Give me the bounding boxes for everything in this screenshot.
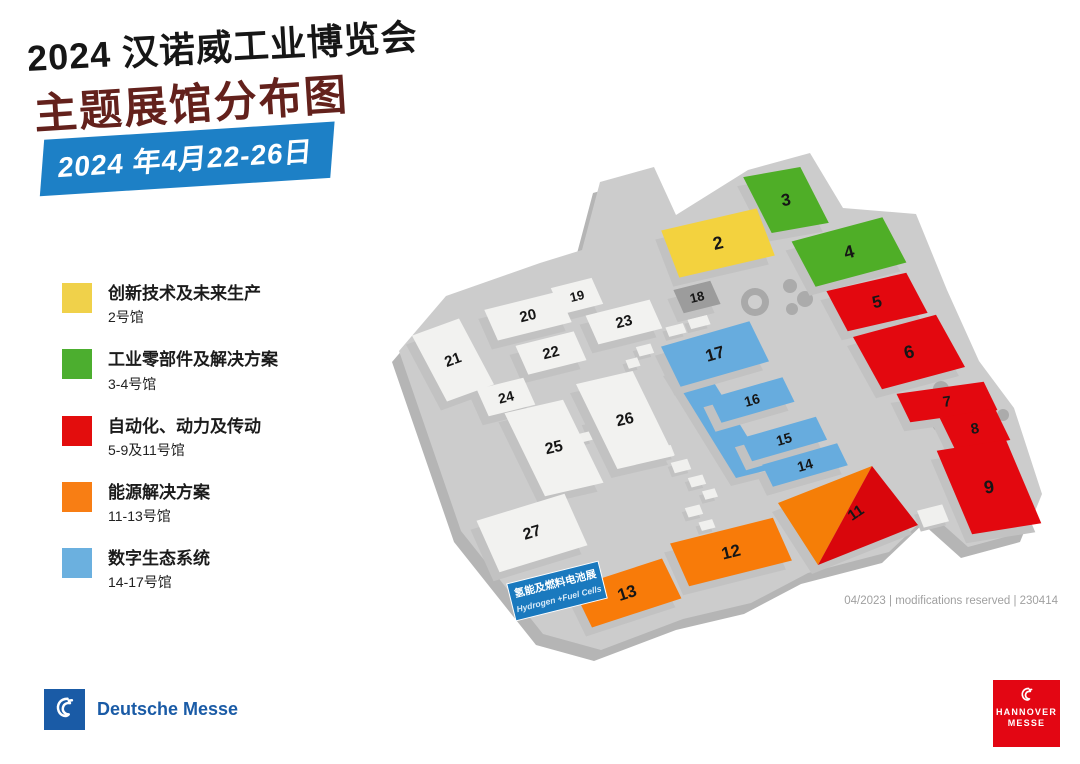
- hannover-messe-line1: HANNOVER: [996, 707, 1057, 718]
- legend-swatch: [62, 349, 92, 379]
- date-banner-text: 2024 年4月22-26日: [57, 136, 314, 183]
- legend-hall-numbers: 5-9及11号馆: [108, 440, 261, 460]
- legend-item-4: 数字生态系统14-17号馆: [62, 548, 278, 592]
- legend-swatch: [62, 416, 92, 446]
- hannover-messe-logo: HANNOVER MESSE: [993, 680, 1060, 747]
- legend-item-0: 创新技术及未来生产2号馆: [62, 283, 278, 327]
- deutsche-messe-logo: Deutsche Messe: [44, 689, 238, 730]
- legend-swatch: [62, 548, 92, 578]
- map-footnote: 04/2023 | modifications reserved | 23041…: [844, 595, 1058, 607]
- legend-label: 工业零部件及解决方案: [108, 349, 278, 370]
- hermes-head-icon: [50, 695, 80, 725]
- legend-label: 创新技术及未来生产: [108, 283, 261, 304]
- hermes-head-icon: [1017, 685, 1037, 707]
- legend-swatch: [62, 283, 92, 313]
- legend-hall-numbers: 3-4号馆: [108, 374, 278, 394]
- hannover-messe-line2: MESSE: [1008, 718, 1046, 729]
- legend-hall-numbers: 2号馆: [108, 307, 261, 327]
- legend-hall-numbers: 14-17号馆: [108, 572, 210, 592]
- legend-hall-numbers: 11-13号馆: [108, 506, 210, 526]
- legend-item-3: 能源解决方案11-13号馆: [62, 482, 278, 526]
- legend-item-2: 自动化、动力及传动5-9及11号馆: [62, 416, 278, 460]
- poster: 3245678919201823222124262517161514271213…: [0, 0, 1080, 764]
- legend-item-1: 工业零部件及解决方案3-4号馆: [62, 349, 278, 393]
- deutsche-messe-mark: [44, 689, 85, 730]
- legend-swatch: [62, 482, 92, 512]
- deutsche-messe-label: Deutsche Messe: [97, 699, 238, 720]
- legend-label: 能源解决方案: [108, 482, 210, 503]
- legend-label: 数字生态系统: [108, 548, 210, 569]
- legend-label: 自动化、动力及传动: [108, 416, 261, 437]
- legend: 创新技术及未来生产2号馆工业零部件及解决方案3-4号馆自动化、动力及传动5-9及…: [62, 283, 278, 614]
